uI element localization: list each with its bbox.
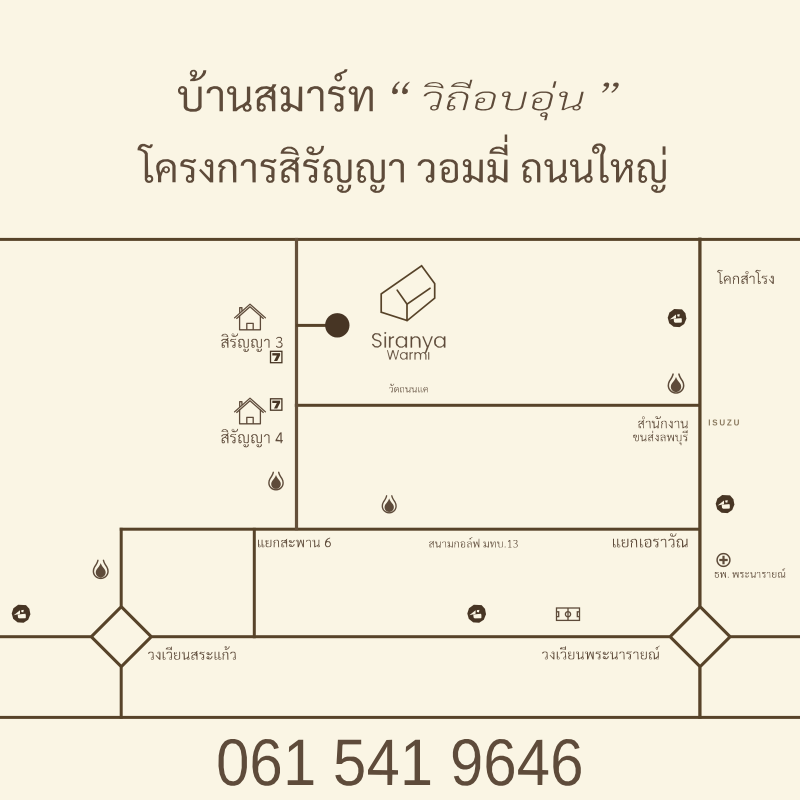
svg-text:ISUZU: ISUZU <box>708 418 741 427</box>
